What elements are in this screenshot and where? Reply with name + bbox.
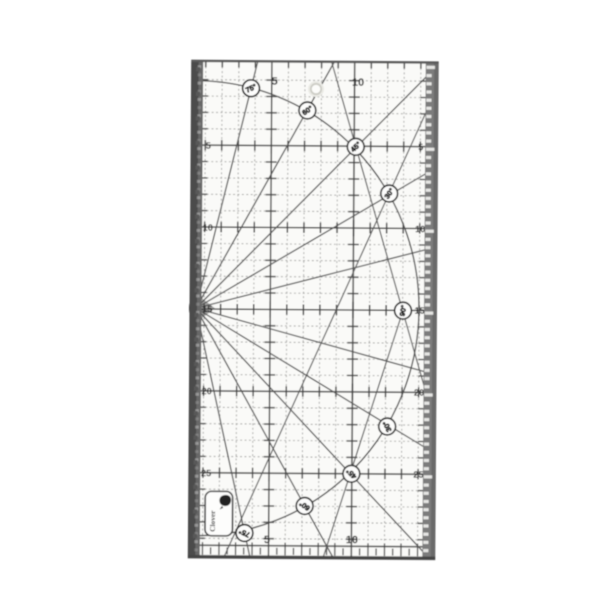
svg-text:5: 5: [418, 142, 423, 152]
svg-text:5: 5: [264, 534, 270, 546]
svg-text:25: 25: [201, 468, 211, 478]
svg-text:15: 15: [202, 304, 212, 314]
svg-text:20: 20: [201, 386, 211, 396]
svg-text:20: 20: [414, 388, 424, 398]
svg-text:5: 5: [206, 141, 211, 151]
svg-text:Clover: Clover: [208, 510, 217, 532]
svg-text:25: 25: [413, 470, 423, 480]
svg-text:10: 10: [346, 534, 358, 546]
svg-text:15: 15: [414, 306, 424, 316]
svg-text:10: 10: [203, 223, 213, 233]
svg-text:10: 10: [352, 77, 364, 89]
svg-text:5: 5: [271, 76, 277, 88]
svg-text:10: 10: [415, 224, 425, 234]
